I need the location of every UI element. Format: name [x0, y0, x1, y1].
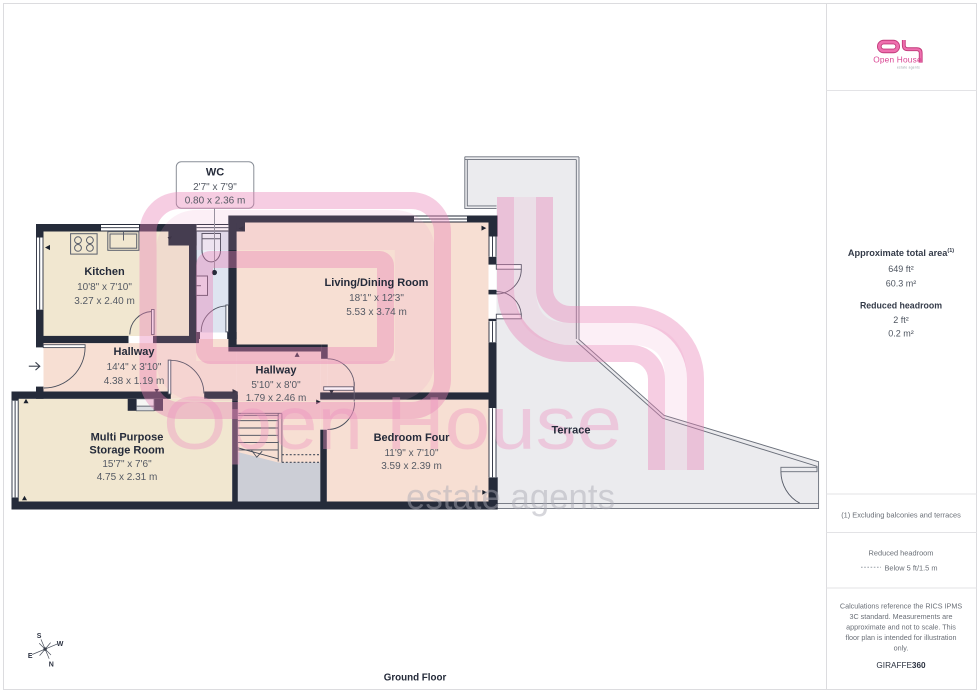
svg-text:15'7" x 7'6": 15'7" x 7'6" [102, 459, 152, 470]
svg-text:3.27 x 2.40 m: 3.27 x 2.40 m [74, 296, 135, 307]
svg-text:GIRAFFE360: GIRAFFE360 [876, 661, 926, 670]
svg-text:estate agents: estate agents [406, 476, 615, 517]
svg-text:Open House: Open House [873, 55, 922, 65]
svg-text:E: E [28, 653, 33, 660]
svg-text:4.38 x 1.19 m: 4.38 x 1.19 m [104, 376, 165, 387]
svg-text:N: N [49, 661, 54, 668]
svg-text:S: S [37, 633, 42, 640]
svg-text:Ground Floor: Ground Floor [384, 673, 447, 684]
svg-text:approximate and not to scale.: approximate and not to scale. This [846, 623, 956, 632]
svg-text:5'10" x 8'0": 5'10" x 8'0" [251, 380, 301, 391]
svg-text:W: W [57, 641, 64, 648]
svg-text:WC: WC [206, 167, 224, 179]
svg-text:649 ft²: 649 ft² [888, 264, 914, 274]
svg-text:estate agents: estate agents [897, 65, 920, 69]
svg-text:Below 5 ft/1.5 m: Below 5 ft/1.5 m [885, 563, 938, 572]
svg-text:floor plan is intended for ill: floor plan is intended for illustration [845, 633, 956, 642]
svg-text:4.75 x 2.31 m: 4.75 x 2.31 m [97, 472, 158, 483]
svg-text:Kitchen: Kitchen [84, 266, 125, 278]
svg-text:0.2 m²: 0.2 m² [888, 329, 914, 339]
svg-text:(1) Excluding balconies and te: (1) Excluding balconies and terraces [841, 511, 961, 520]
svg-text:10'8" x 7'10": 10'8" x 7'10" [77, 282, 132, 293]
svg-text:Approximate total area(1): Approximate total area(1) [848, 248, 954, 258]
svg-text:Bedroom Four: Bedroom Four [374, 432, 450, 444]
svg-text:only.: only. [894, 644, 909, 653]
svg-text:0.80 x 2.36 m: 0.80 x 2.36 m [185, 196, 246, 207]
svg-text:Hallway: Hallway [256, 365, 298, 377]
svg-text:2'7" x 7'9": 2'7" x 7'9" [193, 182, 237, 193]
svg-text:60.3 m²: 60.3 m² [886, 279, 917, 289]
svg-text:3.59 x 2.39 m: 3.59 x 2.39 m [381, 461, 442, 472]
svg-text:Reduced headroom: Reduced headroom [869, 549, 934, 558]
svg-text:14'4" x 3'10": 14'4" x 3'10" [107, 362, 162, 373]
svg-text:5.53 x 3.74 m: 5.53 x 3.74 m [346, 307, 407, 318]
svg-text:Storage Room: Storage Room [89, 445, 164, 457]
svg-text:11'9" x 7'10": 11'9" x 7'10" [384, 448, 439, 459]
svg-text:18'1" x 12'3": 18'1" x 12'3" [349, 293, 404, 304]
svg-text:2 ft²: 2 ft² [893, 315, 909, 325]
svg-text:3C standard. Measurements are: 3C standard. Measurements are [849, 612, 952, 621]
svg-text:Living/Dining Room: Living/Dining Room [325, 277, 429, 289]
svg-text:Reduced headroom: Reduced headroom [860, 301, 942, 311]
svg-text:Terrace: Terrace [552, 425, 591, 437]
svg-text:1.79 x 2.46 m: 1.79 x 2.46 m [246, 393, 307, 404]
svg-text:Calculations reference the RIC: Calculations reference the RICS IPMS [840, 602, 962, 611]
svg-text:Multi Purpose: Multi Purpose [91, 432, 164, 444]
svg-text:Hallway: Hallway [114, 346, 156, 358]
